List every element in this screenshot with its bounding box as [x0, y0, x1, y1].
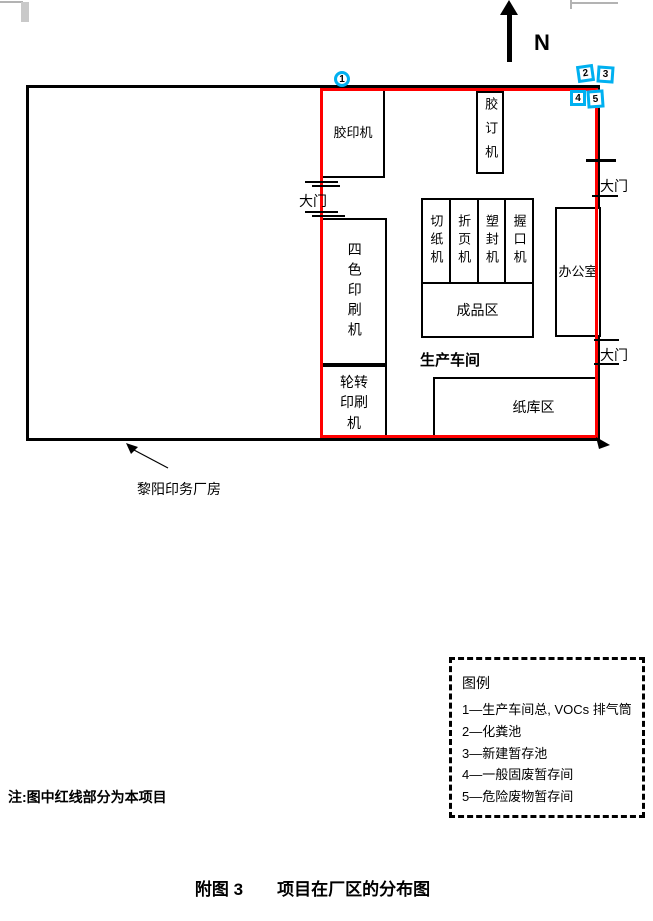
gate-left-tick-bottom2 [312, 215, 345, 217]
room-gripper-machine: 握口机 [506, 200, 532, 282]
room-paper-cutter-label: 切纸机 [426, 214, 445, 268]
gate-right1-tick-bottom [592, 195, 618, 197]
machine-block: 切纸机 折页机 塑封机 握口机 成品区 [421, 198, 534, 338]
gate-right1-tick-top [586, 159, 616, 162]
room-paper-storage-label: 纸库区 [513, 399, 555, 417]
page-edge-mark-left [0, 1, 23, 3]
legend-item-5: 5—危险废物暂存间 [462, 786, 642, 808]
gate-left-tick-top1 [305, 181, 338, 183]
room-finished-goods-label: 成品区 [457, 300, 499, 320]
marker-3-number: 3 [602, 69, 608, 80]
machine-row: 切纸机 折页机 塑封机 握口机 [423, 200, 532, 284]
room-binding-machine-label: 胶订机 [482, 97, 498, 169]
legend-item-1: 1—生产车间总, VOCs 排气筒 [462, 699, 642, 721]
gate-left-label: 大门 [299, 191, 327, 211]
marker-5-number: 5 [592, 93, 598, 104]
room-rotary-press: 轮转印刷机 [321, 365, 387, 440]
gate-right2-tick-top [594, 339, 619, 341]
gate-right2-label: 大门 [600, 345, 628, 365]
legend-box: 图例 1—生产车间总, VOCs 排气筒 2—化粪池 3—新建暂存池 4—一般固… [449, 657, 645, 818]
legend-item-4: 4—一般固废暂存间 [462, 764, 642, 786]
room-office-label: 办公室 [558, 264, 597, 280]
gate-left-tick-bottom1 [305, 211, 338, 213]
gate-right1-label: 大门 [600, 176, 628, 196]
room-folding-machine: 折页机 [451, 200, 479, 282]
marker-3-storage-pool: 3 [596, 65, 614, 83]
room-offset-press-label: 胶印机 [333, 125, 372, 141]
workshop-label: 生产车间 [420, 349, 480, 370]
marker-2-number: 2 [582, 68, 589, 80]
marker-1-number: 1 [339, 74, 345, 85]
figure-canvas: N 胶印机 胶订机 切纸机 折页机 塑封机 握口机 成品区 办公室 [0, 0, 653, 921]
legend-title: 图例 [462, 673, 642, 693]
page-edge-tick-right [570, 0, 572, 9]
room-offset-press: 胶印机 [321, 89, 385, 178]
room-gripper-machine-label: 握口机 [510, 214, 529, 268]
room-four-color-press: 四色印刷机 [321, 218, 387, 365]
page-edge-mark-right [570, 2, 618, 4]
room-four-color-press-label: 四色印刷机 [345, 242, 363, 342]
marker-4-number: 4 [575, 93, 581, 104]
gate-right2-tick-bottom [594, 363, 619, 365]
room-laminating-machine-label: 塑封机 [482, 214, 501, 268]
marker-2-septic-tank: 2 [576, 64, 595, 83]
room-laminating-machine: 塑封机 [479, 200, 507, 282]
room-binding-machine: 胶订机 [476, 91, 504, 174]
room-paper-cutter: 切纸机 [423, 200, 451, 282]
room-folding-machine-label: 折页机 [454, 214, 473, 268]
note-text: 注:图中红线部分为本项目 [8, 787, 167, 807]
room-rotary-press-label: 轮转印刷机 [339, 372, 369, 433]
room-paper-storage: 纸库区 [433, 377, 598, 439]
legend-item-2: 2—化粪池 [462, 721, 642, 743]
north-arrow-shaft [507, 13, 512, 62]
room-office: 办公室 [555, 207, 601, 337]
figure-caption: 附图 3 项目在厂区的分布图 [0, 875, 625, 900]
gate-left-tick-top2 [312, 185, 340, 187]
cursor-artifact [21, 2, 29, 22]
room-finished-goods: 成品区 [423, 284, 532, 336]
marker-1-vocs-stack: 1 [334, 71, 350, 87]
legend-item-3: 3—新建暂存池 [462, 743, 642, 765]
building-name-label: 黎阳印务厂房 [137, 479, 221, 499]
north-label: N [534, 30, 550, 56]
marker-5-hazardous-waste-room: 5 [586, 89, 604, 108]
marker-4-solid-waste-room: 4 [570, 90, 586, 106]
